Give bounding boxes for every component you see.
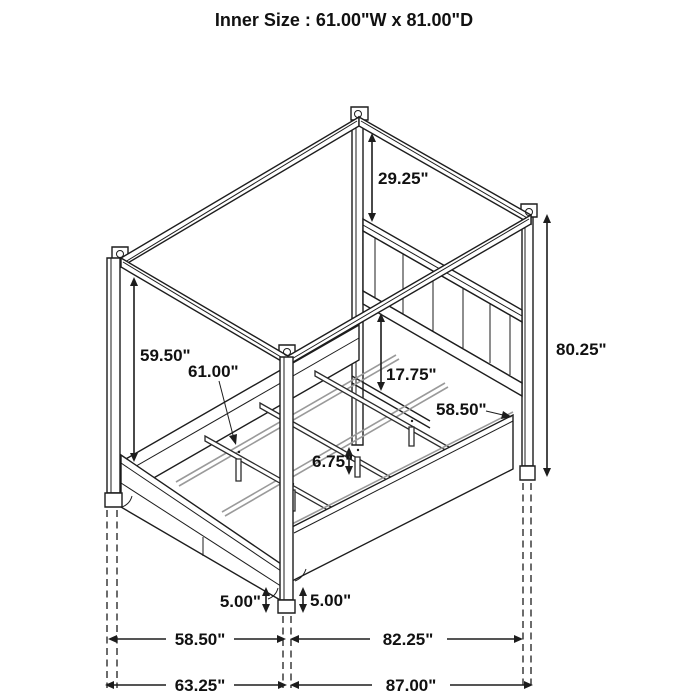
dim-label-footprint-depth-overall: 87.00" — [386, 676, 437, 695]
front-post — [278, 357, 295, 613]
dim-platform-width: 58.50" — [436, 400, 512, 419]
dim-label-inner-width: 61.00" — [188, 362, 239, 381]
dim-slat-leg-height: 6.75" — [312, 447, 353, 475]
dim-footprint-overall-row: 63.25" 87.00" — [105, 676, 533, 695]
dim-label-headboard-above-platform: 17.75" — [386, 365, 437, 384]
right-side-rail — [292, 412, 513, 581]
dim-label-clearance-foot-right: 5.00" — [310, 591, 351, 610]
dim-label-footprint-width-inner: 58.50" — [175, 630, 226, 649]
dim-label-footprint-depth-inner: 82.25" — [383, 630, 434, 649]
page-title: Inner Size : 61.00"W x 81.00"D — [215, 10, 473, 30]
dim-clearance-foot-right: 5.00" — [299, 587, 351, 613]
dim-label-clearance-foot-left: 5.00" — [220, 592, 261, 611]
dim-overall-height: 80.25" — [543, 214, 607, 477]
dim-label-footprint-width-overall: 63.25" — [175, 676, 226, 695]
dim-clearance-foot-left: 5.00" — [220, 587, 270, 613]
dim-label-canopy-to-headboard: 29.25" — [378, 169, 429, 188]
dim-label-canopy-underside-height: 59.50" — [140, 346, 191, 365]
dim-label-overall-height: 80.25" — [556, 340, 607, 359]
dim-label-platform-width: 58.50" — [436, 400, 487, 419]
bed-dimension-diagram: 29.25" 59.50" 61.00" 17.75" 58.50" 80.25… — [0, 0, 700, 700]
left-post — [105, 258, 122, 507]
footboard-drawers — [121, 455, 287, 604]
dim-label-slat-leg-height: 6.75" — [312, 452, 353, 471]
diagram-canvas: 29.25" 59.50" 61.00" 17.75" 58.50" 80.25… — [0, 0, 700, 700]
dim-footprint-inner-row: 58.50" 82.25" — [108, 630, 523, 649]
